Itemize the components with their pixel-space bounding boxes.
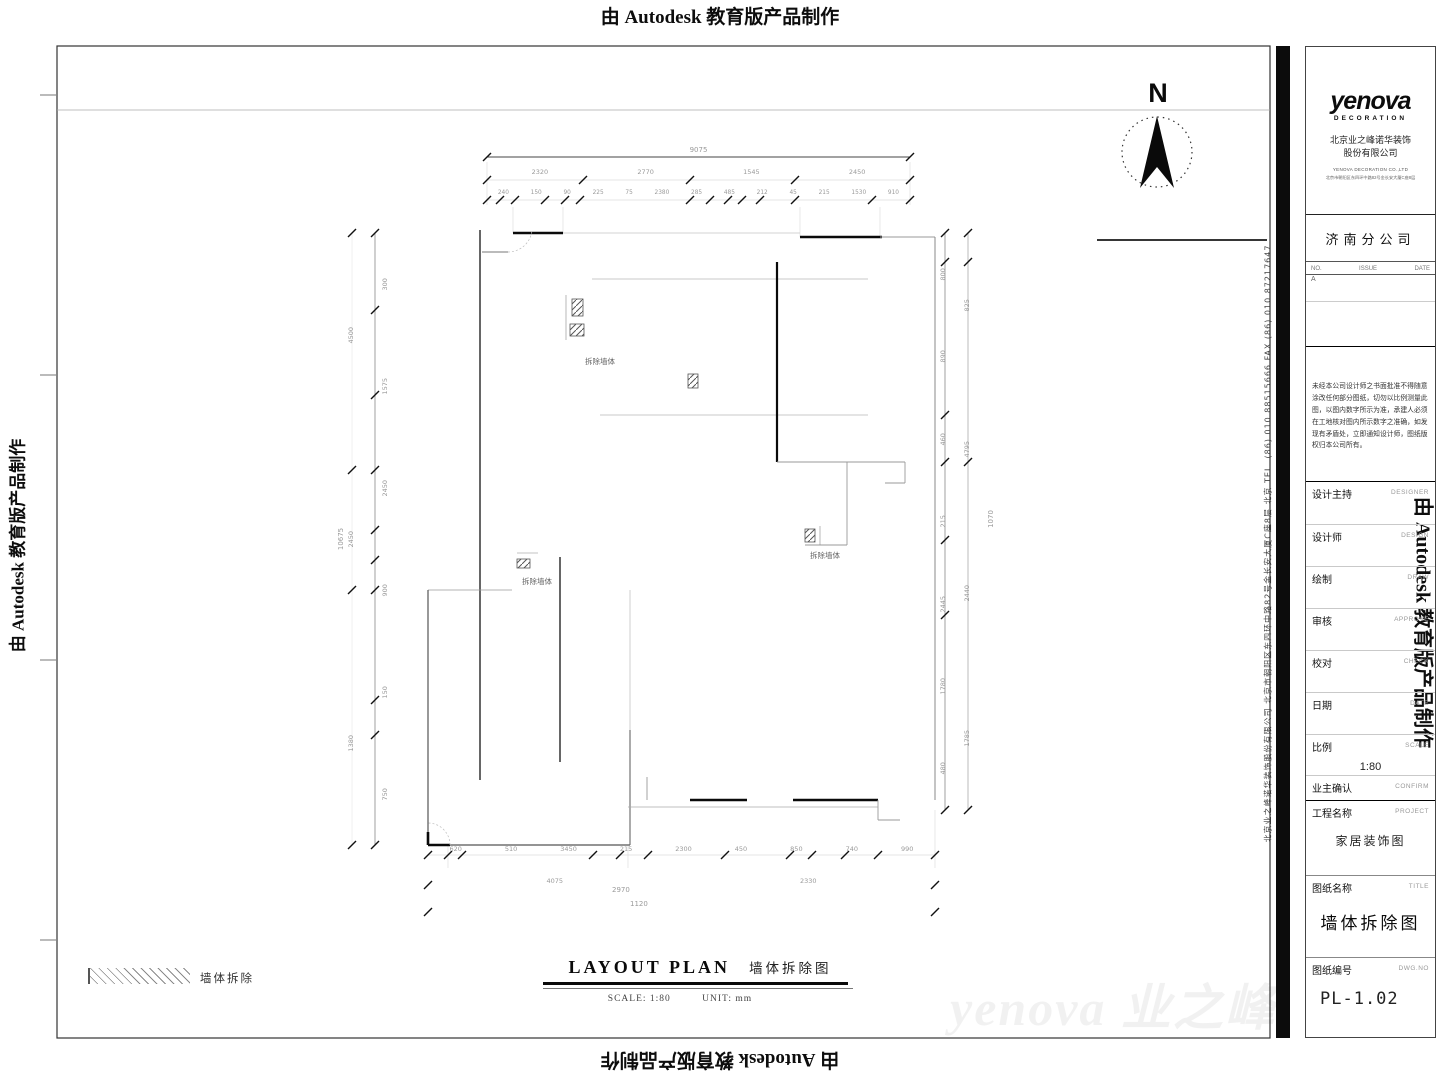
field-label: 日期	[1312, 697, 1332, 712]
field-en: CONFIRM	[1395, 783, 1429, 790]
dim-label: 4500	[348, 327, 355, 344]
fields-section: 设计主持 DESIGNER 设计师 DESIGN 绘制 DRAW 审核 APPR…	[1306, 482, 1435, 800]
project-label: 工程名称	[1312, 805, 1352, 820]
field-label: 设计师	[1312, 529, 1342, 544]
sheet-section: 图纸名称 TITLE 墙体拆除图	[1306, 875, 1435, 957]
rev-issue-header: ISSUE	[1359, 266, 1377, 272]
dim-label: 900	[382, 584, 389, 596]
dim-label: 300	[382, 278, 389, 290]
field-en: CHECK	[1404, 658, 1429, 665]
field-label: 校对	[1312, 655, 1332, 670]
dim-bottom-row1: 62051034502152300450850740990	[428, 846, 935, 853]
dim-top-row3: 24015090225752380285485212452151530910	[487, 191, 910, 197]
dim-label: 2380	[655, 191, 670, 197]
dim-bottom-row2: 40752330	[428, 878, 935, 885]
field-label: 设计主持	[1312, 486, 1352, 501]
demolition-note-1: 拆除墙体	[585, 356, 615, 367]
field-design-director: 设计主持 DESIGNER	[1306, 482, 1435, 524]
dim-label: 2300	[675, 846, 692, 853]
dim-left-inner: 30015752450900150750	[378, 233, 392, 845]
field-en: APPROVE	[1394, 616, 1429, 623]
dim-label: 740	[846, 846, 858, 853]
rev-no-header: NO.	[1311, 266, 1322, 272]
dim-label: 1530	[851, 191, 866, 197]
field-label: 审核	[1312, 613, 1332, 628]
walls	[428, 230, 1267, 845]
sheet-label: 图纸名称	[1312, 880, 1352, 895]
dim-label: 215	[620, 846, 632, 853]
field-en: DRAW	[1407, 574, 1429, 581]
field-label: 绘制	[1312, 571, 1332, 586]
dim-label: 4795	[964, 441, 971, 458]
field-en: DESIGNER	[1391, 489, 1429, 496]
field-confirm: 业主确认 CONFIRM	[1306, 775, 1435, 800]
field-en: DATE	[1410, 700, 1429, 707]
dim-label: 2445	[940, 596, 947, 613]
dim-label: 2450	[348, 531, 355, 548]
dim-label: 225	[593, 191, 604, 197]
dim-label: 485	[724, 191, 735, 197]
dim-label: 825	[964, 299, 971, 311]
dim-label: 212	[757, 191, 768, 197]
scale-value: 1:80	[1312, 754, 1429, 773]
project-value: 家居装饰图	[1312, 820, 1429, 849]
yenova-logo-sub: DECORATION	[1306, 115, 1435, 122]
demolition-note-2: 拆除墙体	[522, 576, 552, 587]
plan-caption-en: LAYOUT PLAN	[568, 957, 730, 977]
dim-label: 850	[790, 846, 802, 853]
demolition-hatch	[517, 295, 820, 568]
dwg-label: 图纸编号	[1312, 962, 1352, 977]
dim-label: 750	[382, 788, 389, 800]
dim-label: 4075	[546, 878, 563, 885]
dim-label: 90	[563, 191, 570, 197]
company-addr: 北京市朝阳区东四环中路82号金长安大厦C座8层	[1306, 175, 1435, 181]
dim-label: 1780	[940, 678, 947, 695]
dwg-section: 图纸编号 DWG.NO PL-1.02	[1306, 957, 1435, 1037]
yenova-logo: yenova	[1306, 89, 1435, 114]
field-label: 比例	[1312, 739, 1332, 754]
dim-label: 240	[498, 191, 509, 197]
dim-right-outer: 825479524401785	[960, 233, 974, 810]
title-block: yenova DECORATION 北京业之峰诺华装饰 股份有限公司 YENOV…	[1305, 46, 1436, 1038]
dim-label: 215	[940, 515, 947, 527]
dim-label: 2320	[532, 169, 549, 176]
dim-label: 2450	[849, 169, 866, 176]
dim-label: 480	[940, 763, 947, 775]
field-scale: 比例 SCALE 1:80	[1306, 734, 1435, 775]
dim-label: 460	[940, 433, 947, 445]
dim-right-inner: 80089046021524451780480	[936, 233, 950, 810]
demolition-note-3: 拆除墙体	[810, 550, 840, 561]
frame-thick-bar	[1276, 46, 1290, 1038]
dim-label: 75	[625, 191, 632, 197]
dim-label: 2440	[964, 585, 971, 602]
dim-label: 800	[940, 268, 947, 280]
dim-label: 990	[901, 846, 913, 853]
dim-label: 2450	[382, 480, 389, 497]
field-en: DESIGN	[1401, 532, 1429, 539]
dim-label: 45	[789, 191, 796, 197]
dim-label: 3450	[560, 846, 577, 853]
dim-label: 1380	[348, 735, 355, 752]
rev-date-header: DATE	[1414, 266, 1430, 272]
dim-label: 1785	[964, 730, 971, 747]
dim-label: 510	[505, 846, 517, 853]
sheet-title-value: 墙体拆除图	[1312, 895, 1429, 934]
rev-empty-row	[1306, 302, 1435, 347]
company-name-cn2: 股份有限公司	[1306, 147, 1435, 160]
field-en: SCALE	[1405, 742, 1429, 749]
field-draw: 绘制 DRAW	[1306, 566, 1435, 608]
dim-label: 2330	[800, 878, 817, 885]
plan-caption: LAYOUT PLAN 墙体拆除图	[500, 957, 900, 978]
dim-label: 910	[888, 191, 899, 197]
rev-mark: A	[1306, 275, 1435, 302]
floorplan-drawing	[0, 0, 1440, 1080]
copyright-notice: 未经本公司设计师之书面批准不得随意涂改任何部分图纸，切勿以比例测量此图，以图内数…	[1306, 375, 1435, 482]
sheet-en: TITLE	[1409, 883, 1429, 890]
field-approve: 审核 APPROVE	[1306, 608, 1435, 650]
dim-label: 620	[449, 846, 461, 853]
field-check: 校对 CHECK	[1306, 650, 1435, 692]
dwg-number: PL-1.02	[1312, 977, 1429, 1009]
project-en: PROJECT	[1395, 808, 1429, 815]
titleblock-logo-section: yenova DECORATION 北京业之峰诺华装饰 股份有限公司 YENOV…	[1306, 47, 1435, 215]
dim-label: 1575	[382, 378, 389, 395]
dim-top-row2: 2320277015452450	[487, 169, 910, 176]
dim-left-outer: 450024501380	[344, 233, 358, 845]
dim-label: 215	[819, 191, 830, 197]
field-label: 业主确认	[1312, 780, 1352, 795]
project-section: 工程名称 PROJECT 家居装饰图	[1306, 800, 1435, 875]
branch-name: 济南分公司	[1306, 215, 1435, 262]
field-date: 日期 DATE	[1306, 692, 1435, 734]
dim-label: 150	[382, 686, 389, 698]
dim-label: 450	[735, 846, 747, 853]
dim-label: 150	[531, 191, 542, 197]
dim-label: 1545	[743, 169, 760, 176]
dim-label: 2770	[637, 169, 654, 176]
plan-caption-zh: 墙体拆除图	[749, 961, 832, 977]
dim-label: 890	[940, 350, 947, 362]
field-designer: 设计师 DESIGN	[1306, 524, 1435, 566]
company-name-cn: 北京业之峰诺华装饰	[1306, 134, 1435, 147]
dim-label: 285	[691, 191, 702, 197]
north-arrow-icon	[1122, 116, 1192, 188]
dwg-en: DWG.NO	[1399, 965, 1429, 972]
company-name-en: YENOVA DECORATION CO.,LTD	[1306, 167, 1435, 172]
dim-bottom-row3	[612, 886, 652, 914]
revision-table: NO. ISSUE DATE A	[1306, 262, 1435, 375]
